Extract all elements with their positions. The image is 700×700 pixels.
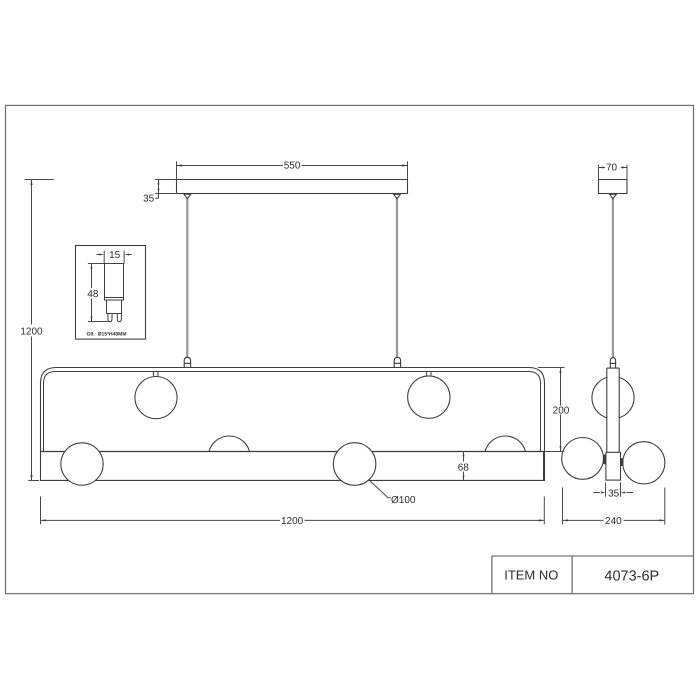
- svg-text:68: 68: [458, 462, 470, 473]
- svg-text:4073-6P: 4073-6P: [604, 568, 659, 584]
- svg-text:35: 35: [143, 194, 155, 205]
- svg-text:48: 48: [87, 289, 99, 300]
- svg-text:70: 70: [606, 162, 618, 173]
- svg-text:15: 15: [109, 250, 121, 261]
- svg-text:ITEM NO: ITEM NO: [504, 568, 558, 583]
- svg-text:G9: Ø15*H48MM: G9: Ø15*H48MM: [87, 331, 127, 337]
- svg-text:Ø100: Ø100: [391, 495, 416, 506]
- svg-text:200: 200: [553, 405, 570, 416]
- svg-text:240: 240: [605, 516, 622, 527]
- svg-text:35: 35: [608, 488, 620, 499]
- svg-text:550: 550: [284, 161, 301, 172]
- svg-text:1200: 1200: [281, 516, 304, 527]
- svg-text:1200: 1200: [20, 326, 43, 337]
